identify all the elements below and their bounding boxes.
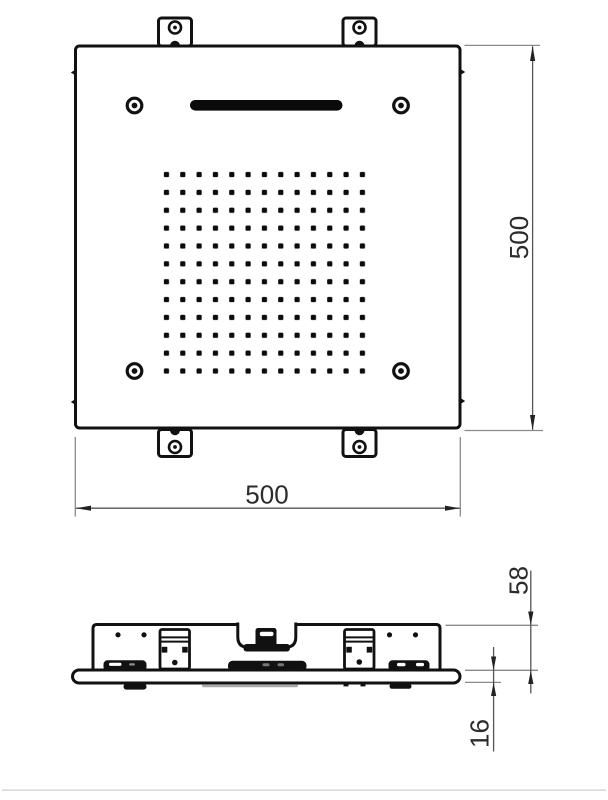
svg-text:16: 16 <box>465 719 495 748</box>
svg-text:500: 500 <box>245 480 288 510</box>
svg-text:58: 58 <box>504 566 534 595</box>
svg-text:500: 500 <box>504 216 534 259</box>
